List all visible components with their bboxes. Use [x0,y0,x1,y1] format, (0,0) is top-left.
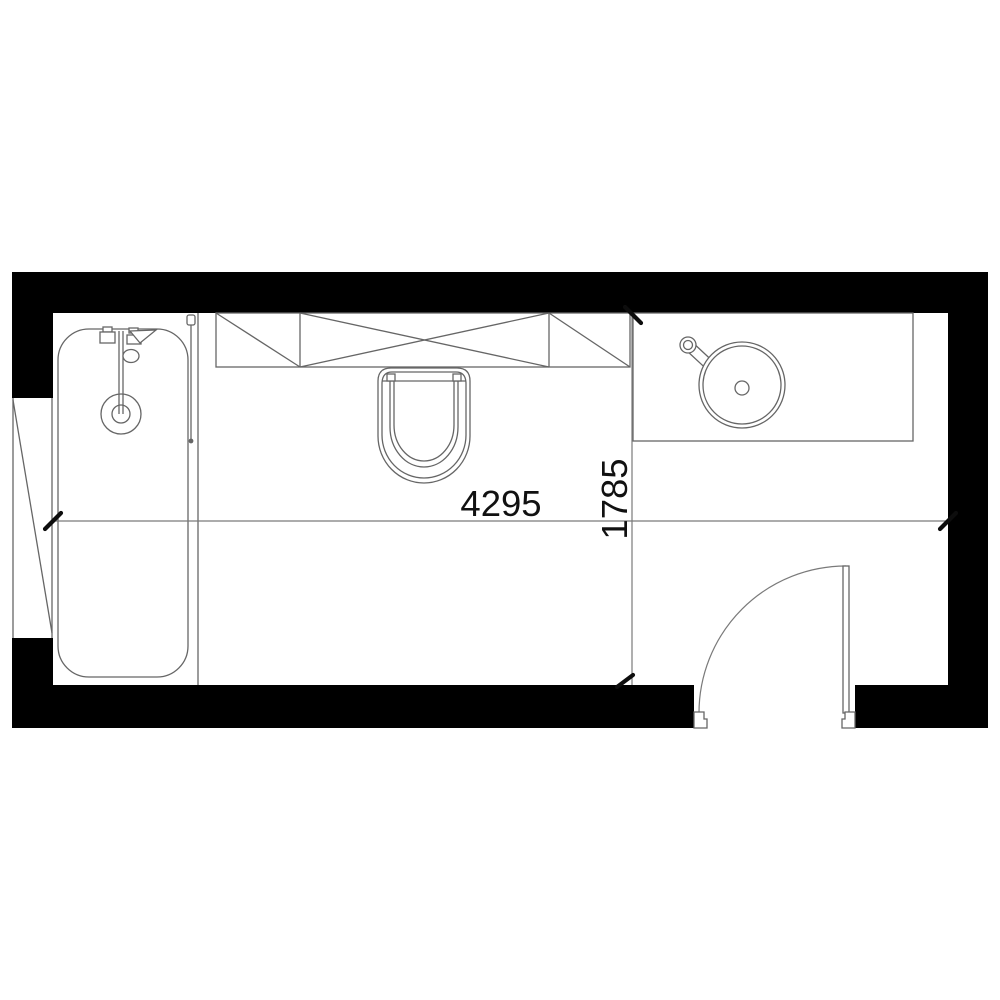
wall-bottom-right [855,685,988,728]
door [694,566,855,728]
window-glazing-diagonal [13,400,52,633]
bathtub [58,327,188,677]
cabinet-left-diagonal [216,313,300,367]
door-jamb-right [842,712,855,728]
toilet-hinge-left [387,374,395,381]
basin-outer-rim [699,342,785,428]
floor-plan-canvas: 4295 1785 [0,0,1000,1000]
toilet-hinge-right [453,374,461,381]
wall-top [12,272,988,313]
dimension-label-depth: 1785 [594,458,635,539]
door-leaf [843,566,849,713]
screen-bracket [187,315,195,325]
mixer-knob [123,350,139,363]
storage-cabinet [216,313,630,367]
wall-bottom-left [12,685,694,728]
window [13,398,52,638]
floor-plan-svg: 4295 1785 [0,0,1000,1000]
dimension-vertical: 1785 [594,307,641,687]
vanity-counter [633,313,913,441]
washbasin [699,342,785,428]
door-jamb-left [694,712,707,728]
screen-end-cap [189,439,194,444]
dimension-label-width: 4295 [460,483,541,524]
toilet [378,368,470,483]
wall-right [948,272,988,728]
wall-left-upper [12,272,53,398]
cabinet-right-diagonal [549,313,630,367]
door-swing-arc [699,566,846,713]
